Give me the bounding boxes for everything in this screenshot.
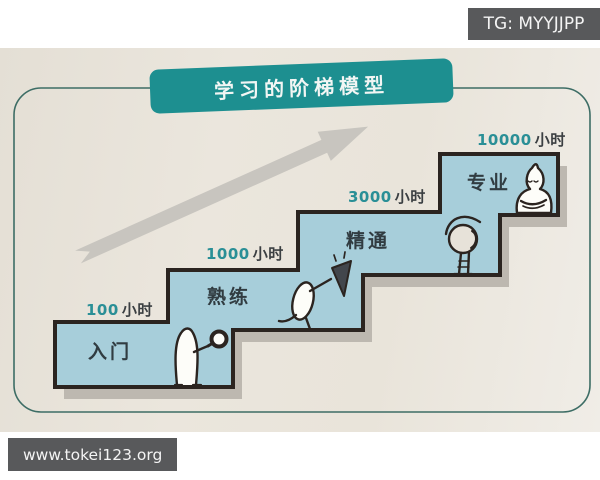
step-label-expert: 专业 [467,168,511,195]
step-label-proficient: 熟练 [207,282,251,309]
hours-number: 10000 [477,131,532,149]
hours-number: 100 [86,301,119,319]
hours-unit: 小时 [253,245,284,263]
hours-label-3000: 3000小时 [348,186,426,207]
diagram-title: 学习的阶梯模型 [214,68,390,104]
hours-unit: 小时 [122,301,153,319]
step-label-mastery: 精通 [346,226,390,253]
hours-label-1000: 1000小时 [206,243,284,264]
hours-number: 3000 [348,188,392,206]
hours-unit: 小时 [535,131,566,149]
hours-label-100: 100小时 [86,299,153,320]
hours-label-10000: 10000小时 [477,129,566,150]
hours-unit: 小时 [395,188,426,206]
step-label-beginner: 入门 [88,337,132,364]
hours-number: 1000 [206,245,250,263]
telegram-watermark-badge: TG: MYYJJPP [468,8,600,40]
website-watermark-badge: www.tokei123.org [8,438,177,471]
